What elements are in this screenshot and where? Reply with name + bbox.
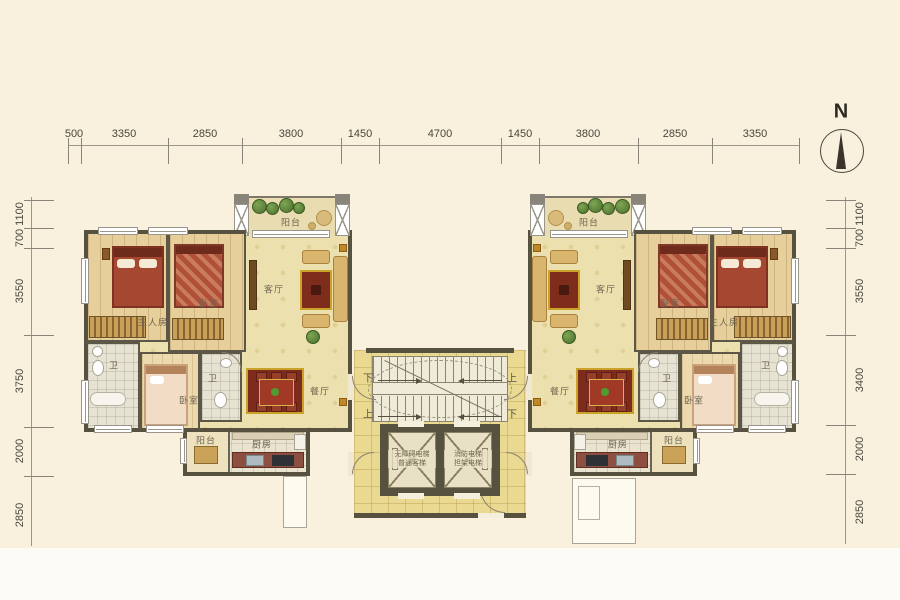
plant (293, 202, 305, 214)
tick (24, 476, 54, 477)
dim-label: 3350 (112, 128, 136, 140)
room-label-master: 主人房 (709, 316, 739, 329)
plant (279, 198, 294, 213)
sink (92, 346, 103, 357)
toilet (776, 360, 788, 376)
kitchen-stove (586, 455, 608, 466)
wall-lamp (339, 244, 347, 252)
nightstand (102, 248, 110, 260)
sofa-small (302, 314, 330, 328)
room-label-bath2: 卫 (662, 372, 672, 385)
bed-pillow (117, 259, 135, 268)
tick (168, 138, 169, 164)
elevator-label-line: 无障碍电梯 (388, 450, 436, 459)
balcony-table (548, 210, 564, 226)
dim-line-right (845, 197, 846, 544)
window (94, 425, 132, 433)
plant (588, 198, 603, 213)
stair-arrow (464, 380, 502, 381)
room-label-balcony: 阳台 (281, 216, 301, 229)
fridge (574, 434, 586, 450)
dim-label: 2850 (854, 500, 866, 524)
elevator-label-accessible: 无障碍电梯 普通客梯 (388, 450, 436, 468)
window (146, 425, 184, 433)
plant (577, 202, 589, 214)
window (748, 425, 786, 433)
tick (24, 335, 54, 336)
sink (777, 346, 788, 357)
room-label-living: 客厅 (596, 283, 616, 296)
floor-plan-page: { "compass": {"label": "N"}, "dims": { "… (0, 0, 900, 600)
room-label-bath2: 卫 (208, 372, 218, 385)
sofa-small (302, 250, 330, 264)
dim-line-left (31, 197, 32, 546)
bedroom-wardrobe (656, 318, 708, 340)
window (98, 227, 138, 235)
room-label-bedroom2: 卧室 (684, 394, 704, 407)
sofa-small (550, 314, 578, 328)
window (550, 230, 628, 238)
plant (252, 199, 267, 214)
toilet (214, 392, 227, 408)
tick (826, 425, 856, 426)
balcony-stool (564, 222, 572, 230)
balcony-table (316, 210, 332, 226)
room-label-bedroom: 卧室 (660, 297, 680, 310)
balcony-pillar-window (335, 204, 350, 236)
master-wardrobe (734, 316, 791, 338)
window (696, 425, 734, 433)
wall-lamp (339, 398, 347, 406)
duct-shaft (234, 194, 249, 204)
duct-shaft (631, 194, 646, 204)
window (180, 438, 187, 464)
balcony-pillar-window (530, 204, 545, 236)
room-label-balcony2: 阳台 (196, 434, 216, 447)
dim-label: 4700 (428, 128, 452, 140)
kitchen-sink (246, 455, 264, 466)
living-rug (300, 270, 332, 310)
stair-label-down: 下 (507, 406, 517, 421)
elevator-label-line: 担架电梯 (444, 459, 492, 468)
bedroom-wardrobe (172, 318, 224, 340)
room-label-living: 客厅 (264, 283, 284, 296)
lower-level-outline-inner (578, 486, 600, 520)
stair-arrowhead (416, 414, 422, 420)
fridge (294, 434, 306, 450)
window (252, 230, 330, 238)
dim-label: 700 (14, 229, 26, 247)
tick (826, 474, 856, 475)
stair-arrow (464, 416, 502, 417)
tick (81, 138, 82, 164)
lobby-door-gap (478, 513, 504, 518)
duct-shaft (530, 194, 545, 204)
balcony-stool (308, 222, 316, 230)
bed-pillow (698, 376, 712, 384)
tick (24, 200, 54, 201)
stair-arrowhead (458, 378, 464, 384)
tick (24, 248, 54, 249)
window (148, 227, 188, 235)
balcony2-table (194, 446, 218, 464)
elevator-door-gap (398, 421, 424, 427)
stair-arrowhead (458, 414, 464, 420)
dim-label: 1450 (508, 128, 532, 140)
stair-label-up: 上 (363, 406, 373, 421)
master-bed (716, 246, 768, 308)
room-label-master: 主人房 (138, 316, 168, 329)
room-label-balcony2: 阳台 (664, 434, 684, 447)
stair-ellipse (368, 360, 512, 418)
tick (379, 138, 380, 164)
coffee-table (311, 285, 321, 295)
bed-pillow (743, 259, 761, 268)
lower-level-outline (283, 476, 307, 528)
sofa-main (333, 256, 348, 322)
window (692, 227, 732, 235)
tick (68, 138, 69, 164)
balcony2-table (662, 446, 686, 464)
wall-lamp (533, 244, 541, 252)
tick (341, 138, 342, 164)
dim-line-top (68, 145, 799, 146)
tick (638, 138, 639, 164)
tick (826, 335, 856, 336)
window (693, 438, 700, 464)
wall-lamp (533, 398, 541, 406)
bed-headboard (660, 246, 706, 254)
tick (712, 138, 713, 164)
room-label-bedroom: 卧室 (199, 297, 219, 310)
stair-arrowhead (416, 378, 422, 384)
elevator-door-gap (398, 493, 424, 499)
elevator-door-gap (454, 421, 480, 427)
core-top-wall (366, 348, 514, 353)
tick (501, 138, 502, 164)
stair-arrow (378, 416, 416, 417)
bed-pillow (139, 259, 157, 268)
coffee-table (559, 285, 569, 295)
dim-label: 1100 (854, 202, 866, 226)
dim-label: 3400 (854, 368, 866, 392)
dim-label: 1100 (14, 202, 26, 226)
dim-label: 700 (854, 229, 866, 247)
stair-arrow (378, 380, 416, 381)
plant (602, 202, 615, 215)
duct-shaft (335, 194, 350, 204)
tick (24, 427, 54, 428)
plant (562, 330, 576, 344)
room-label-dining: 餐厅 (550, 385, 570, 398)
room-label-dining: 餐厅 (310, 385, 330, 398)
living-rug (548, 270, 580, 310)
dim-label: 2000 (854, 437, 866, 461)
bed-pillow (721, 259, 739, 268)
dining-rug (246, 368, 304, 414)
tick (826, 200, 856, 201)
unit-right-bath (740, 342, 796, 432)
elevator-label-fire: 消防电梯 担架电梯 (444, 450, 492, 468)
kitchen-sink (616, 455, 634, 466)
tv-cabinet (623, 260, 631, 310)
plant (266, 202, 279, 215)
bathtub (90, 392, 126, 406)
room-label-bedroom2: 卧室 (179, 394, 199, 407)
elevator-label-line: 消防电梯 (444, 450, 492, 459)
bathtub (754, 392, 790, 406)
dining-centerpiece (601, 388, 609, 396)
elevator-label-line: 普通客梯 (388, 459, 436, 468)
bed-headboard (718, 248, 766, 257)
window (791, 258, 799, 304)
bed-headboard (176, 246, 222, 254)
plant (306, 330, 320, 344)
north-label: N (834, 101, 848, 124)
tick (24, 228, 54, 229)
room-label-kitchen: 厨房 (608, 438, 628, 451)
window (81, 258, 89, 304)
dim-label: 1450 (348, 128, 372, 140)
toilet (653, 392, 666, 408)
sofa-small (550, 250, 578, 264)
room-label-balcony: 阳台 (579, 216, 599, 229)
bed-headboard (146, 366, 186, 374)
dim-label: 3350 (743, 128, 767, 140)
tv-cabinet (249, 260, 257, 310)
elevator-door-gap (454, 493, 480, 499)
bed-headboard (114, 248, 162, 257)
dim-label: 3550 (854, 279, 866, 303)
tick (242, 138, 243, 164)
tick (539, 138, 540, 164)
bed-pillow (150, 376, 164, 384)
plant (615, 199, 630, 214)
tick (826, 248, 856, 249)
window (81, 380, 89, 424)
dim-label: 3800 (279, 128, 303, 140)
window (791, 380, 799, 424)
dim-label: 500 (65, 128, 83, 140)
room-label-kitchen: 厨房 (252, 438, 272, 451)
room-label-bath: 卫 (109, 359, 119, 372)
tick (826, 228, 856, 229)
sofa-main (532, 256, 547, 322)
window (742, 227, 782, 235)
dim-label: 3800 (576, 128, 600, 140)
dim-label: 2850 (14, 503, 26, 527)
dim-label: 3750 (14, 369, 26, 393)
tick (799, 138, 800, 164)
bed-headboard (694, 366, 734, 374)
master-bed (112, 246, 164, 308)
bottom-margin (0, 548, 900, 600)
unit-left-bath (84, 342, 140, 432)
compass-needle-icon (836, 132, 846, 169)
kitchen-stove (272, 455, 294, 466)
dim-label: 2000 (14, 439, 26, 463)
dim-label: 2850 (193, 128, 217, 140)
toilet (92, 360, 104, 376)
nightstand (770, 248, 778, 260)
dining-rug (576, 368, 634, 414)
room-label-bath: 卫 (761, 359, 771, 372)
dim-label: 3550 (14, 279, 26, 303)
dining-centerpiece (271, 388, 279, 396)
dim-label: 2850 (663, 128, 687, 140)
